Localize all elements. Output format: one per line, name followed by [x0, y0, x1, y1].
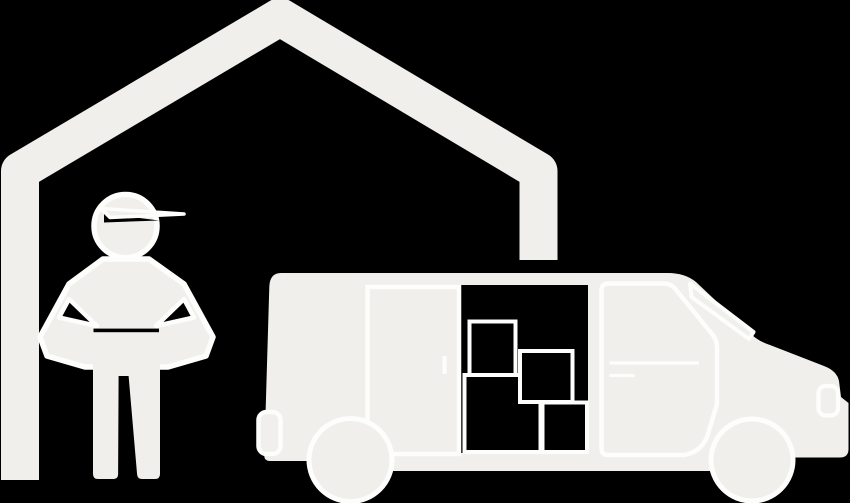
sliding-door-handle [443, 356, 447, 374]
tail-light [259, 412, 281, 454]
worker-figure-icon [40, 195, 213, 480]
headlight [819, 386, 839, 416]
cargo-box-tall [470, 322, 516, 376]
worker-legs [93, 331, 160, 479]
front-wheel [711, 419, 793, 501]
rear-wheel [309, 419, 392, 502]
worker-belt-line [94, 329, 160, 333]
worker-head [94, 195, 157, 258]
cap-brim-icon [101, 209, 184, 218]
cargo-box-middle [520, 351, 573, 402]
moving-van-icon [259, 273, 849, 502]
cargo-box-small [543, 403, 588, 453]
moving-service-pictogram [0, 0, 850, 503]
pictogram-canvas [0, 0, 850, 503]
